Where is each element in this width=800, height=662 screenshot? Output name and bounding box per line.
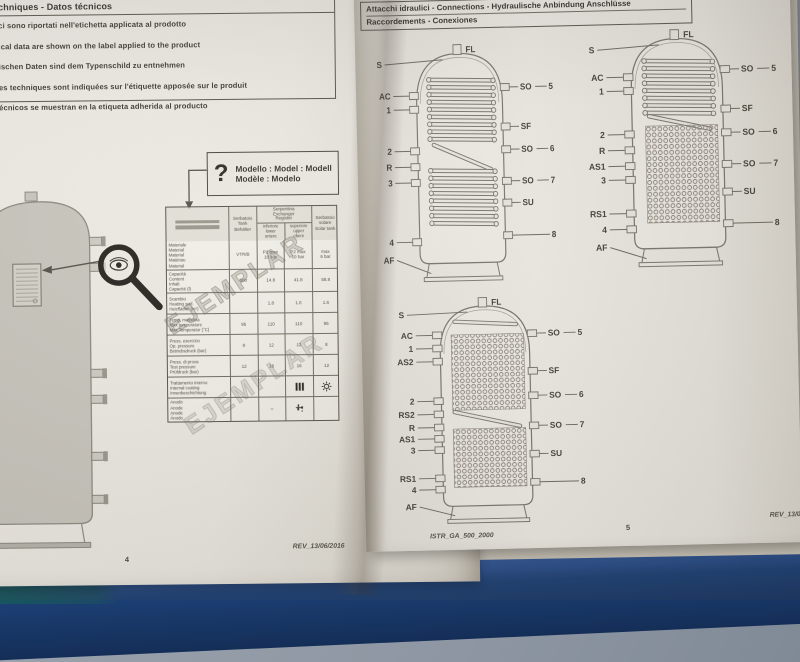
table-cell: 12 <box>285 334 313 354</box>
connection-label: 7 <box>551 174 556 185</box>
table-row: Press. di prova Test pressure Prüfdruck … <box>168 354 338 377</box>
connection-label: 4 <box>412 485 417 495</box>
connection-label: SO <box>550 420 563 430</box>
note-italian: ci sono riportati nell'etichetta applica… <box>0 18 326 30</box>
table-row: Press. esercizio Op. pressure Betriebsdr… <box>168 333 338 356</box>
connection-label: AF <box>596 242 608 252</box>
connection-label: SF <box>521 121 532 132</box>
connection-label: S <box>398 310 404 320</box>
col-exchanger: Serpentina Exchanger Register <box>257 206 311 224</box>
connection-label: 8 <box>552 229 557 240</box>
table-cell <box>230 377 258 397</box>
table-cell: 41.8 <box>284 269 312 292</box>
eye-magnifier-icon <box>101 247 160 308</box>
revision-text: REV_13/06/2016 <box>293 543 345 551</box>
note-english: ical data are shown on the label applied… <box>0 38 327 50</box>
model-callout-box: ? Modello : Model : Modell Modèle : Mode… <box>207 151 339 196</box>
table-cell: 12 <box>312 355 340 375</box>
connection-label: AC <box>401 331 413 341</box>
connection-label: FL <box>683 29 694 39</box>
table-cell <box>285 397 313 420</box>
table-cell <box>229 293 257 313</box>
table-cell: 110 <box>257 314 285 334</box>
label-bar <box>175 220 219 224</box>
note-spanish: écnicos se muestran en la etiqueta adher… <box>0 100 327 112</box>
table-cell: 12 <box>257 335 285 355</box>
connection-label: 3 <box>601 175 606 185</box>
connection-label: SO <box>742 126 755 136</box>
note-french: es techniques sont indiquées sur l'étiqu… <box>0 79 327 91</box>
table-cell: 16 <box>285 355 313 375</box>
table-cell: 16 <box>257 356 285 376</box>
connection-label: 2 <box>600 130 605 140</box>
col-exchanger-lower: inferiore lower untere <box>257 223 285 240</box>
connection-label: R <box>409 423 415 433</box>
model-label-line1: Modello : Model : Modell <box>235 163 331 174</box>
connection-label: RS2 <box>398 410 415 420</box>
connection-label: R <box>386 162 392 173</box>
connection-label: 5 <box>577 327 582 337</box>
connection-label: AC <box>379 91 391 102</box>
table-cell: 95 <box>229 314 257 334</box>
connection-label: 3 <box>411 445 416 455</box>
table-cell: 110 <box>284 313 312 333</box>
table-surface-teal <box>0 584 120 604</box>
page-number: 5 <box>626 523 630 532</box>
connection-label: 1 <box>386 105 391 116</box>
document-code: ISTR_GA_500_2000 <box>430 532 494 540</box>
table-row: Capacità Content Inhalt Capacité (l)5001… <box>167 268 337 293</box>
question-mark-icon: ? <box>214 162 229 186</box>
table-cell: P2 max 10 bar <box>284 240 312 268</box>
tank-coil-and-corrugated: FLSAC12RAS13RS14AFSO5SFSO6SO7SU8 <box>580 16 790 273</box>
row-label: Anodo Anode Anode Ánodo <box>168 398 230 421</box>
connection-label: 5 <box>548 80 553 91</box>
row-label: Scambio Heating surf. Heizfläche (m²) <box>167 293 229 314</box>
table-cell: 1.0 <box>284 292 312 312</box>
col-exchanger-group: Serpentina Exchanger Register inferiore … <box>256 206 311 241</box>
connection-label: 7 <box>580 419 585 429</box>
table-row: Anodo Anode Anode Ánodo○ <box>168 396 338 421</box>
table-cell <box>312 376 340 396</box>
technical-data-table: Serbatoio Tank Behälter Serpentina Excha… <box>165 205 339 423</box>
technical-data-header-box: Technical data - Technische Daten chniqu… <box>0 0 336 103</box>
label-bar <box>175 225 219 229</box>
sun-icon <box>321 381 332 392</box>
table-row: Trattamento interno Internal coating Inn… <box>168 375 338 398</box>
connection-label: SU <box>550 448 562 458</box>
tank-double-corrugated: FLSAC1AS22RS2RAS13RS14AFSO5SFSO6SO7SU8 <box>390 285 595 529</box>
table-cell: 500 <box>229 269 257 292</box>
connection-label: FL <box>465 44 475 55</box>
table-cell <box>285 376 313 396</box>
table-cell <box>257 377 285 397</box>
right-page: Attacchi idraulici - Connections - Hydra… <box>354 0 800 552</box>
table-cell: 12 <box>230 356 258 376</box>
connection-label: SU <box>522 197 533 208</box>
page-title-line2: chniques - Datos técnicos <box>0 0 326 12</box>
row-label: Trattamento interno Internal coating Inn… <box>168 377 230 398</box>
connection-label: AF <box>384 255 395 266</box>
table-cell: 95 <box>312 313 340 333</box>
row-label: Press. di prova Test pressure Prüfdruck … <box>168 356 230 377</box>
table-cell: 1.6 <box>312 292 340 312</box>
connection-label: 4 <box>602 225 607 235</box>
connection-label: 6 <box>579 389 584 399</box>
table-cell: 58.8 <box>311 269 339 292</box>
heating-element-icon <box>294 381 305 392</box>
connection-label: 3 <box>388 178 393 189</box>
connection-label: S <box>376 60 382 71</box>
connection-label: 7 <box>773 158 778 168</box>
table-cell: 1.8 <box>257 293 285 313</box>
page-number: 4 <box>125 555 129 564</box>
connection-label: FL <box>491 297 501 307</box>
connection-label: RS1 <box>590 209 607 220</box>
table-body: Materiale Material Material Matériau Mat… <box>167 240 339 422</box>
model-label-line2: Modèle : Modelo <box>236 173 301 184</box>
multilanguage-notes: ci sono riportati nell'etichetta applica… <box>0 13 335 113</box>
connection-label: AS1 <box>589 161 606 172</box>
connection-label: 8 <box>581 475 586 485</box>
connection-label: SO <box>522 175 534 186</box>
connection-label: 2 <box>387 146 392 157</box>
connection-label: 1 <box>599 86 604 96</box>
label-placeholder-cell <box>166 207 228 242</box>
hydraulic-diagram-2: FLSAC12RAS13RS14AFSO5SFSO6SO7SU8 <box>580 16 790 273</box>
connection-label: RS1 <box>400 474 417 484</box>
connection-label: 8 <box>775 217 780 227</box>
connection-label: SF <box>549 365 560 375</box>
connection-label: 5 <box>771 63 776 73</box>
table-header-row: Serbatoio Tank Behälter Serpentina Excha… <box>166 206 336 242</box>
connection-label: AC <box>591 73 604 83</box>
revision-text: REV_13/06/2016 <box>770 511 800 519</box>
connection-label: AS1 <box>399 434 416 444</box>
table-cell: VTR/B <box>229 241 257 269</box>
row-label: Press. esercizio Op. pressure Betriebsdr… <box>168 335 230 356</box>
row-label: Capacità Content Inhalt Capacité (l) <box>167 270 229 293</box>
table-row: Scambio Heating surf. Heizfläche (m²)1.8… <box>167 291 337 314</box>
table-cell: 8 <box>230 335 258 355</box>
connection-label: 6 <box>550 143 555 154</box>
rating-plate <box>13 264 41 306</box>
row-label: Temp. massima Max temperature Max Temper… <box>167 314 229 335</box>
connection-label: SF <box>742 103 753 113</box>
hydraulic-diagram-3: FLSAC1AS22RS2RAS13RS14AFSO5SFSO6SO7SU8 <box>390 285 595 529</box>
connection-label: 4 <box>389 237 394 248</box>
connection-label: SO <box>520 81 532 92</box>
table-cell <box>230 398 258 421</box>
connection-label: S <box>589 45 595 55</box>
faucet-icon <box>294 403 305 414</box>
connection-label: 6 <box>773 126 778 136</box>
connection-label: 1 <box>408 344 413 354</box>
table-cell: ○ <box>258 398 286 421</box>
table-row: Materiale Material Material Matériau Mat… <box>167 240 337 270</box>
table-cell: 14.8 <box>256 269 284 292</box>
connection-label: AS2 <box>397 357 414 367</box>
col-exchanger-upper: superiore upper obere <box>284 223 312 240</box>
connection-label: SO <box>549 389 562 399</box>
table-cell: P2 max 10 bar <box>256 240 284 268</box>
connection-label: AF <box>406 502 417 512</box>
hydraulic-diagram-1: FLSAC12R34AFSO5SFSO6SO7SU8 <box>369 31 567 287</box>
table-cell: 8 <box>312 334 340 354</box>
connection-label: SO <box>521 143 533 154</box>
table-cell: max 6 bar <box>311 240 339 268</box>
col-solar-tank: Serbatoio solare Solar tank <box>311 206 339 240</box>
connection-label: SO <box>548 327 561 337</box>
connection-label: SO <box>741 63 754 73</box>
note-german: ischen Daten sind dem Typenschild zu ent… <box>0 59 327 71</box>
table-cell <box>313 397 341 420</box>
connection-label: SU <box>744 186 756 196</box>
row-label: Materiale Material Material Matériau Mat… <box>167 241 229 269</box>
tank-two-coils: FLSAC12R34AFSO5SFSO6SO7SU8 <box>369 31 567 287</box>
connection-label: 2 <box>410 397 415 407</box>
table-row: Temp. massima Max temperature Max Temper… <box>167 312 337 335</box>
col-tank: Serbatoio Tank Behälter <box>228 207 256 241</box>
connection-label: SO <box>743 158 756 168</box>
connection-label: R <box>599 146 606 156</box>
